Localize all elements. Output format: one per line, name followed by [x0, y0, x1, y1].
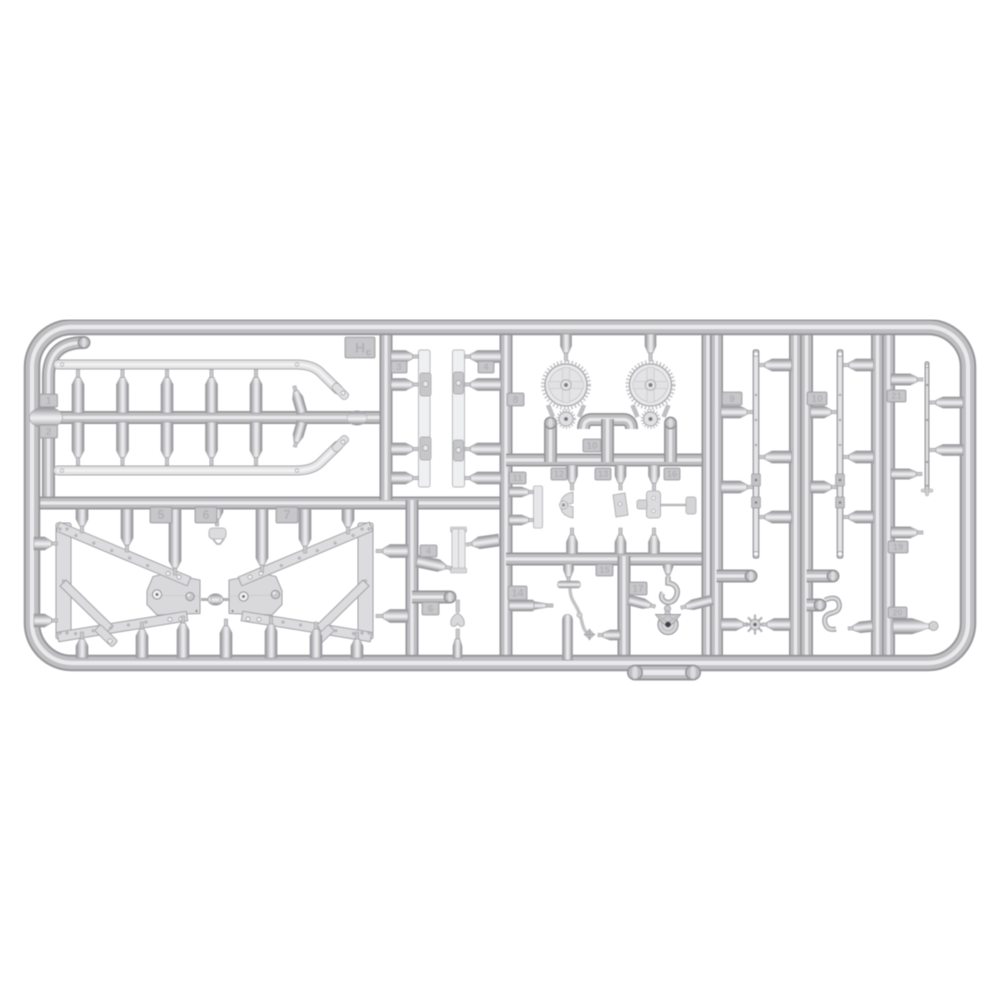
svg-text:1: 1	[46, 396, 52, 407]
svg-text:13: 13	[598, 468, 608, 479]
svg-text:4: 4	[426, 545, 432, 556]
svg-text:12: 12	[554, 468, 564, 479]
svg-text:15: 15	[599, 564, 609, 575]
svg-text:6: 6	[428, 604, 434, 615]
svg-text:21: 21	[891, 390, 901, 401]
svg-text:14: 14	[511, 588, 523, 600]
svg-text:5: 5	[158, 508, 165, 522]
svg-text:7: 7	[284, 508, 291, 522]
svg-text:11: 11	[513, 472, 523, 483]
svg-text:6: 6	[203, 508, 210, 522]
svg-text:2: 2	[46, 427, 52, 438]
svg-text:10: 10	[811, 394, 823, 405]
svg-text:8: 8	[513, 395, 519, 406]
svg-text:10: 10	[586, 441, 598, 452]
svg-text:20: 20	[893, 607, 903, 617]
svg-text:19: 19	[893, 541, 903, 552]
svg-text:9: 9	[729, 394, 735, 405]
svg-text:H: H	[355, 339, 365, 355]
svg-text:16: 16	[667, 468, 677, 479]
svg-text:c: c	[366, 347, 371, 357]
svg-text:4: 4	[483, 361, 489, 372]
svg-text:17: 17	[632, 584, 644, 595]
svg-text:3: 3	[396, 361, 401, 372]
